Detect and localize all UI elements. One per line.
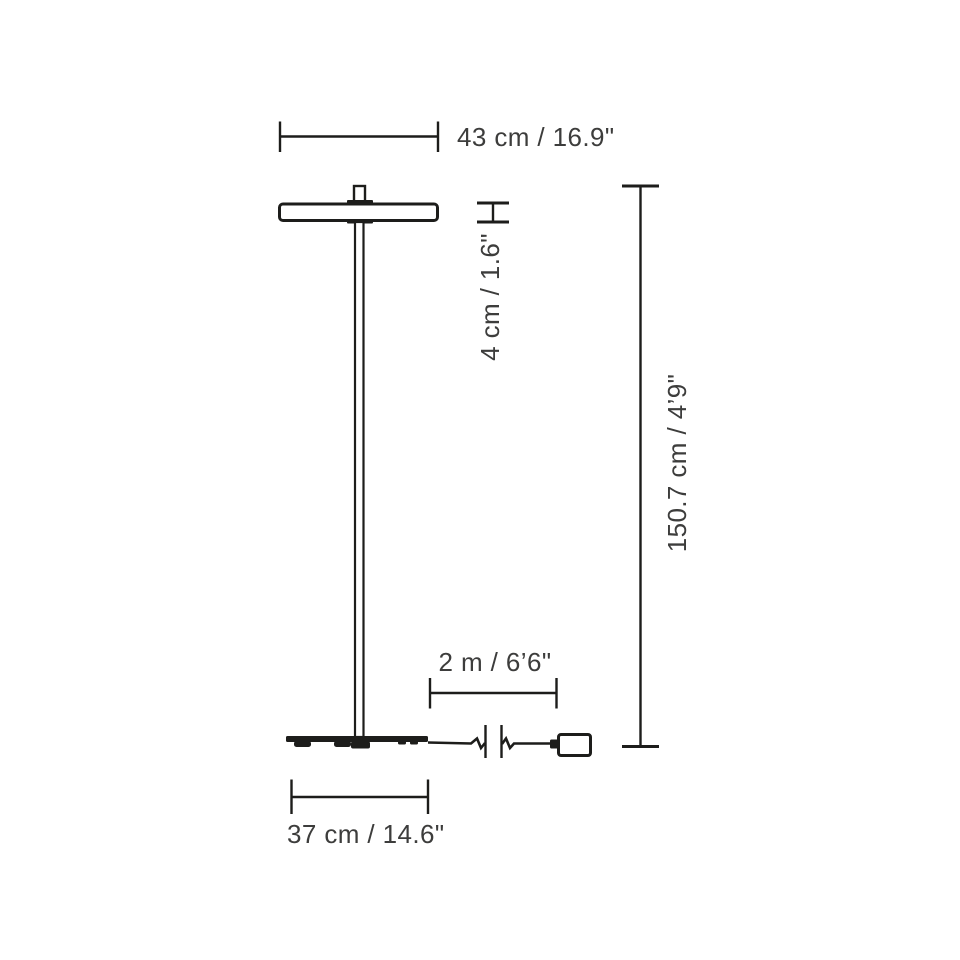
lamp-head <box>280 204 438 221</box>
dim-cord-length: 2 m / 6’6" <box>430 647 557 709</box>
dim-head-height: 4 cm / 1.6" <box>475 203 509 361</box>
dim-label-total-height: 150.7 cm / 4’9" <box>662 374 692 553</box>
base-foot-under-pole <box>351 742 370 749</box>
base-pad-right-1 <box>398 741 406 745</box>
dim-label-cord-length: 2 m / 6’6" <box>439 647 552 677</box>
plug <box>559 735 591 756</box>
dim-label-head-width: 43 cm / 16.9" <box>457 122 615 152</box>
dimension-diagram: 43 cm / 16.9" 4 cm / 1.6" 150.7 cm / 4’9… <box>0 0 960 960</box>
power-cord <box>428 725 591 758</box>
cord-segment-right <box>502 739 551 749</box>
dim-base-width: 37 cm / 14.6" <box>287 780 445 850</box>
dim-label-head-height: 4 cm / 1.6" <box>475 233 505 361</box>
base-foot-middle <box>334 741 351 747</box>
base-foot-left <box>294 741 311 747</box>
dim-total-height: 150.7 cm / 4’9" <box>622 186 692 747</box>
dim-head-width: 43 cm / 16.9" <box>280 122 615 153</box>
dim-label-base-width: 37 cm / 14.6" <box>287 819 445 849</box>
lamp-pole <box>355 222 364 737</box>
cord-segment-left <box>428 739 485 749</box>
lamp <box>280 186 438 749</box>
floor-lamp-drawing: 43 cm / 16.9" 4 cm / 1.6" 150.7 cm / 4’9… <box>0 0 960 960</box>
base-pad-right-2 <box>410 741 418 745</box>
